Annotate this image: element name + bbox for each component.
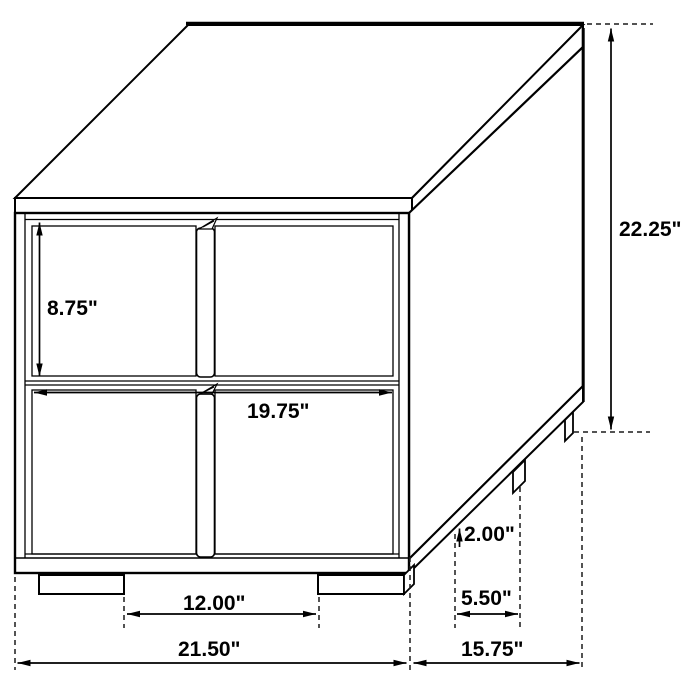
dim-label-drawer-height: 8.75" (47, 297, 98, 320)
nightstand-dimension-drawing: 8.75" 19.75" 22.25" 2.00" 5.50" 12.00" 2… (0, 0, 700, 700)
cabinet-drawing (15, 24, 584, 595)
dim-label-front-foot-gap: 12.00" (183, 592, 246, 615)
front-foot-left (39, 575, 124, 594)
dim-label-overall-width: 21.50" (178, 638, 241, 661)
drawer-pull-upper (197, 228, 215, 377)
drawer-pull-lower (197, 394, 215, 557)
dim-label-foot-height: 2.00" (464, 523, 515, 546)
dim-label-interior-width: 19.75" (247, 400, 310, 423)
dim-label-side-foot-gap: 5.50" (461, 587, 512, 610)
front-foot-right (318, 575, 404, 594)
dim-label-overall-depth: 15.75" (461, 638, 524, 661)
dimension-drawing-canvas: 8.75" 19.75" 22.25" 2.00" 5.50" 12.00" 2… (0, 0, 700, 700)
dim-label-overall-height: 22.25" (619, 218, 682, 241)
top-slab-front-edge (15, 198, 412, 213)
